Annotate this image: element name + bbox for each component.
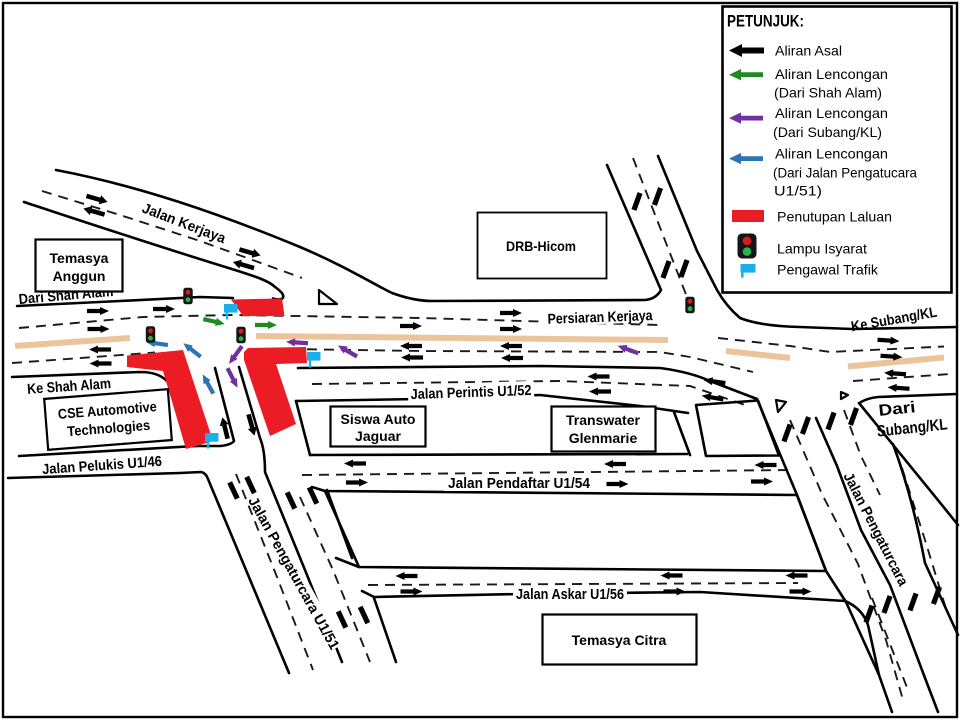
- svg-text:(Dari Subang/KL): (Dari Subang/KL): [773, 124, 882, 140]
- svg-text:Transwater: Transwater: [566, 412, 640, 428]
- svg-text:Pengawal Trafik: Pengawal Trafik: [777, 262, 879, 278]
- svg-text:Aliran Lencongan: Aliran Lencongan: [775, 66, 888, 82]
- svg-text:Jalan Pendaftar U1/54: Jalan Pendaftar U1/54: [448, 476, 590, 492]
- svg-text:DRB-Hicom: DRB-Hicom: [506, 238, 576, 254]
- svg-text:(Dari Shah Alam): (Dari Shah Alam): [774, 85, 882, 101]
- svg-text:(Dari Jalan Pengatucara: (Dari Jalan Pengatucara: [773, 165, 917, 181]
- svg-text:Lampu Isyarat: Lampu Isyarat: [777, 241, 867, 257]
- svg-text:PETUNJUK:: PETUNJUK:: [727, 13, 804, 31]
- svg-text:U1/51): U1/51): [774, 183, 822, 199]
- svg-text:Siswa Auto: Siswa Auto: [341, 411, 416, 427]
- svg-text:Penutupan Laluan: Penutupan Laluan: [777, 209, 892, 225]
- svg-text:Aliran Lencongan: Aliran Lencongan: [775, 105, 888, 121]
- svg-text:Aliran Lencongan: Aliran Lencongan: [775, 146, 888, 162]
- svg-text:Jaguar: Jaguar: [355, 428, 401, 444]
- svg-text:Anggun: Anggun: [53, 268, 106, 284]
- svg-text:Aliran Asal: Aliran Asal: [775, 43, 842, 59]
- svg-text:Temasya Citra: Temasya Citra: [572, 632, 667, 648]
- svg-text:Glenmarie: Glenmarie: [569, 430, 638, 446]
- svg-text:Jalan Askar U1/56: Jalan Askar U1/56: [516, 587, 624, 603]
- svg-text:Temasya: Temasya: [50, 250, 109, 266]
